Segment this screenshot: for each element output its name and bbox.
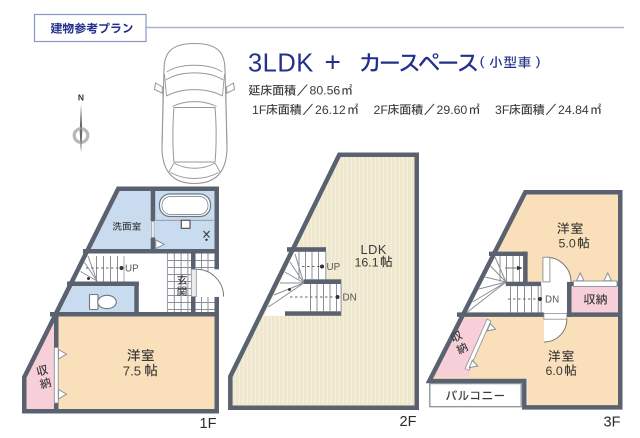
svg-text:N: N [78, 93, 84, 103]
svg-text:1F: 1F [200, 416, 217, 432]
svg-text:2F: 2F [374, 103, 389, 117]
svg-text:7.5: 7.5 [123, 363, 141, 378]
svg-text:DN: DN [545, 295, 559, 306]
svg-text:26.12: 26.12 [315, 103, 346, 117]
svg-text:+: + [325, 47, 341, 78]
svg-text:5.0: 5.0 [559, 237, 576, 251]
svg-text:3F: 3F [495, 103, 510, 117]
svg-text:3F: 3F [604, 415, 621, 431]
svg-text:2F: 2F [400, 414, 417, 430]
svg-text:80.56: 80.56 [310, 84, 341, 98]
svg-text:UP: UP [327, 262, 341, 273]
svg-text:6.0: 6.0 [546, 364, 563, 378]
svg-text:1F: 1F [252, 103, 267, 117]
svg-text:3LDK: 3LDK [248, 50, 314, 78]
svg-text:UP: UP [125, 264, 139, 275]
svg-text:16.1: 16.1 [355, 255, 379, 269]
svg-text:29.60: 29.60 [437, 103, 468, 117]
svg-text:DN: DN [343, 293, 357, 304]
svg-text:24.84: 24.84 [558, 103, 589, 117]
